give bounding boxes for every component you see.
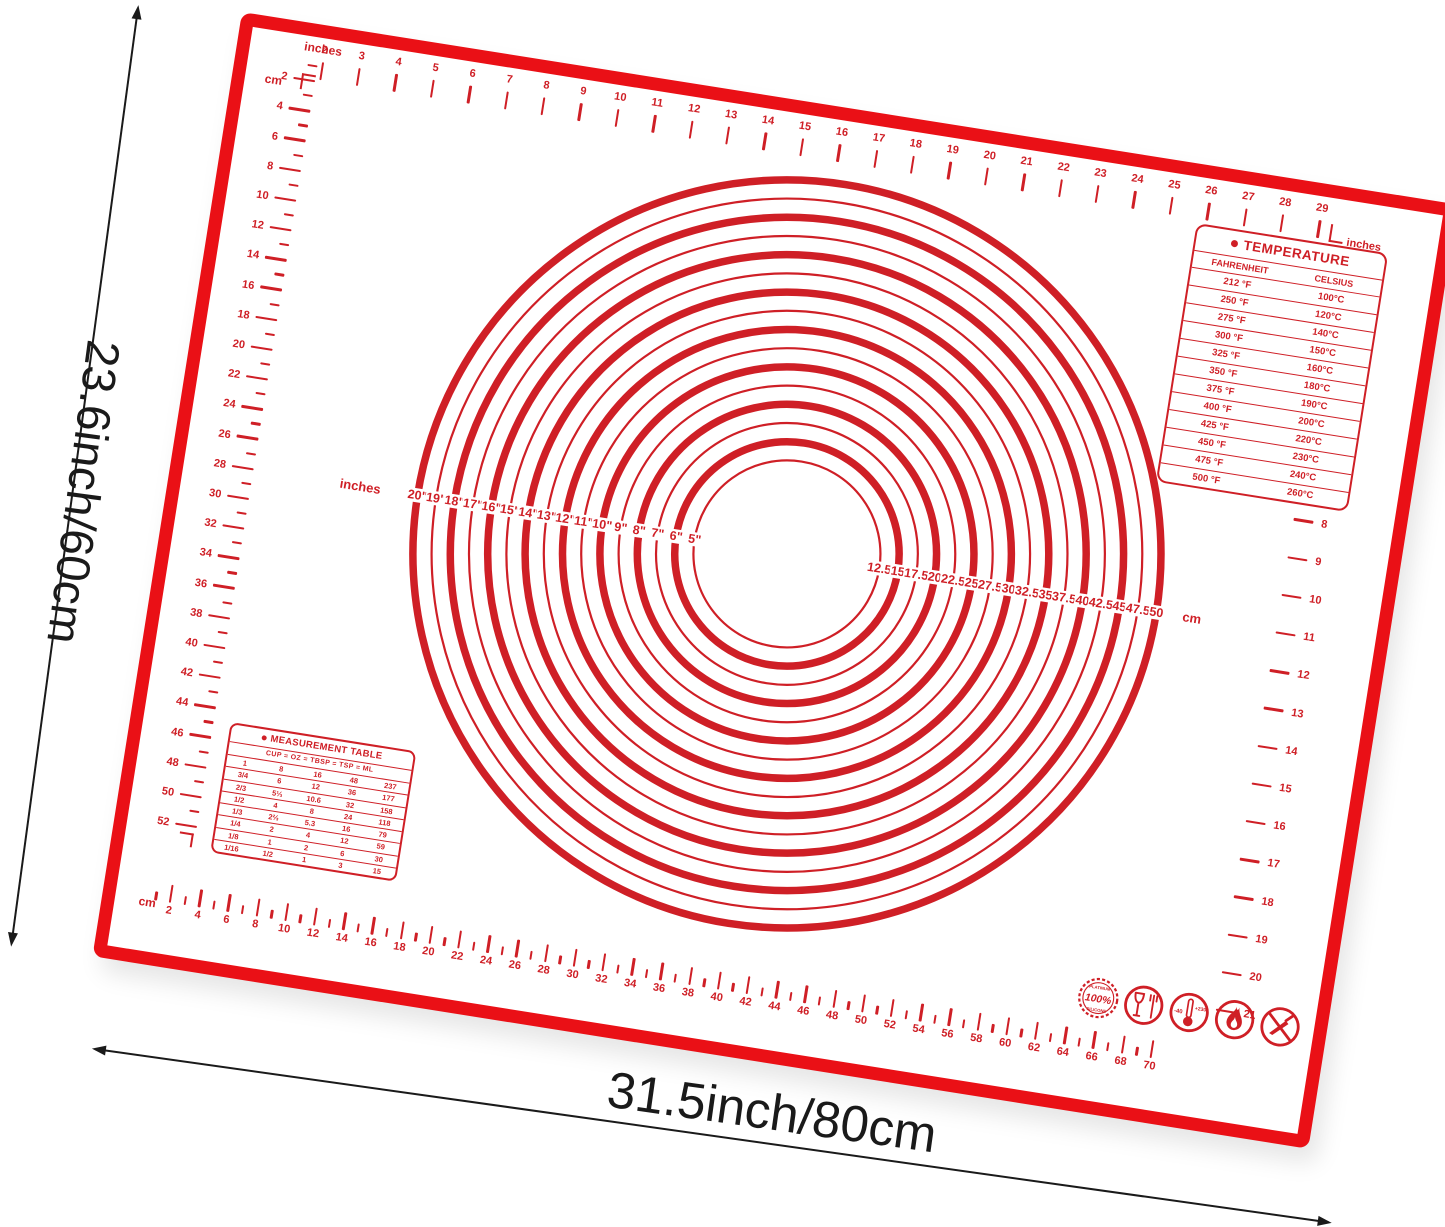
thermometer-max-text: +230 bbox=[1194, 1006, 1206, 1014]
mat-printed-area: inches cm inches cm inches20"19"18"17"16… bbox=[107, 27, 1443, 1134]
bullet-dot-icon bbox=[1230, 240, 1238, 248]
diameter-circle-12in bbox=[530, 297, 1043, 810]
baking-mat: inches cm inches cm inches20"19"18"17"16… bbox=[92, 12, 1445, 1149]
diameter-circle-5in bbox=[680, 447, 894, 661]
height-dimension-label: 23.6inch/60cm bbox=[36, 337, 131, 647]
circle-inch-label: 6" bbox=[668, 528, 685, 544]
diameter-circle-17in bbox=[423, 190, 1150, 917]
arrowhead-down-icon bbox=[6, 932, 18, 947]
diameter-circle-18in bbox=[402, 169, 1172, 939]
stamp-center-text: 100% bbox=[1084, 992, 1112, 1007]
circle-cm-label: 50 bbox=[1147, 604, 1165, 620]
diameter-circle-13in bbox=[509, 276, 1065, 832]
arrowhead-left-icon bbox=[91, 1044, 106, 1056]
measurement-value: 1/16 bbox=[213, 841, 251, 856]
stamp-top-text: PLATINUM bbox=[1089, 984, 1111, 992]
measurement-value: 3 bbox=[322, 858, 360, 873]
circle-inch-label: 9" bbox=[612, 520, 629, 536]
diameter-circle-11in bbox=[552, 319, 1023, 790]
circle-inch-label: 5" bbox=[686, 531, 703, 547]
food-safe-icon bbox=[1120, 981, 1168, 1029]
diameter-circle-19in bbox=[380, 147, 1193, 960]
temperature-table: TEMPERATURE FAHRENHEIT CELSIUS 212 °F100… bbox=[1156, 223, 1389, 512]
flame-icon bbox=[1211, 996, 1259, 1044]
platinum-silicone-stamp: PLATINUM 100% SILICONE bbox=[1074, 974, 1122, 1022]
circle-inch-label: 7" bbox=[649, 525, 666, 541]
circle-inch-label: 8" bbox=[631, 522, 648, 538]
arrowhead-up-icon bbox=[132, 4, 144, 19]
measurement-value: 1/2 bbox=[249, 846, 287, 861]
bullet-dot-icon bbox=[261, 735, 267, 741]
no-knife-icon bbox=[1256, 1003, 1304, 1051]
arrowhead-right-icon bbox=[1317, 1216, 1332, 1227]
product-photo-background: 23.6inch/60cm 31.5inch/80cm inches cm in… bbox=[0, 0, 1445, 1227]
temperature-range-icon: -40 +230 bbox=[1165, 988, 1213, 1036]
diameter-circle-6in bbox=[659, 426, 916, 683]
measurement-value: 1 bbox=[285, 852, 323, 867]
circle-cm-unit-label: cm bbox=[1180, 609, 1203, 627]
stamp-bottom-text: SILICONE bbox=[1086, 1006, 1107, 1014]
diameter-circle-8in bbox=[616, 383, 958, 725]
thermometer-min-text: -40 bbox=[1174, 1008, 1184, 1015]
measurement-value: 15 bbox=[358, 864, 396, 879]
